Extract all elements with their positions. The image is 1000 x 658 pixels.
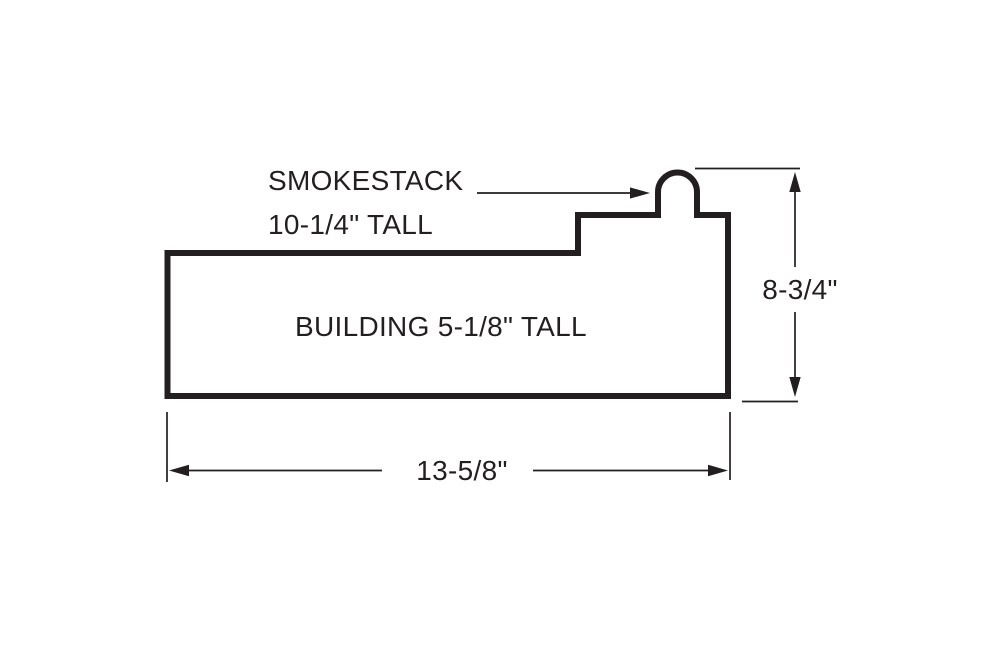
height-arrowhead-up-icon bbox=[789, 172, 800, 192]
width-dimension-value: 13-5/8" bbox=[416, 455, 507, 486]
smokestack-leader-arrowhead-icon bbox=[630, 187, 650, 198]
building-label: BUILDING 5-1/8" TALL bbox=[295, 311, 587, 342]
width-arrowhead-right-icon bbox=[708, 465, 728, 476]
smokestack-label-line2: 10-1/4" TALL bbox=[268, 209, 433, 240]
width-arrowhead-left-icon bbox=[169, 465, 189, 476]
building-smokestack-outline bbox=[168, 173, 729, 397]
building-dimension-diagram: 8-3/4" 13-5/8" SMOKESTACK 10-1/4" TALL B… bbox=[0, 0, 1000, 658]
height-dimension-value: 8-3/4" bbox=[762, 274, 838, 305]
smokestack-label-line1: SMOKESTACK bbox=[268, 165, 463, 196]
height-arrowhead-down-icon bbox=[789, 377, 800, 397]
